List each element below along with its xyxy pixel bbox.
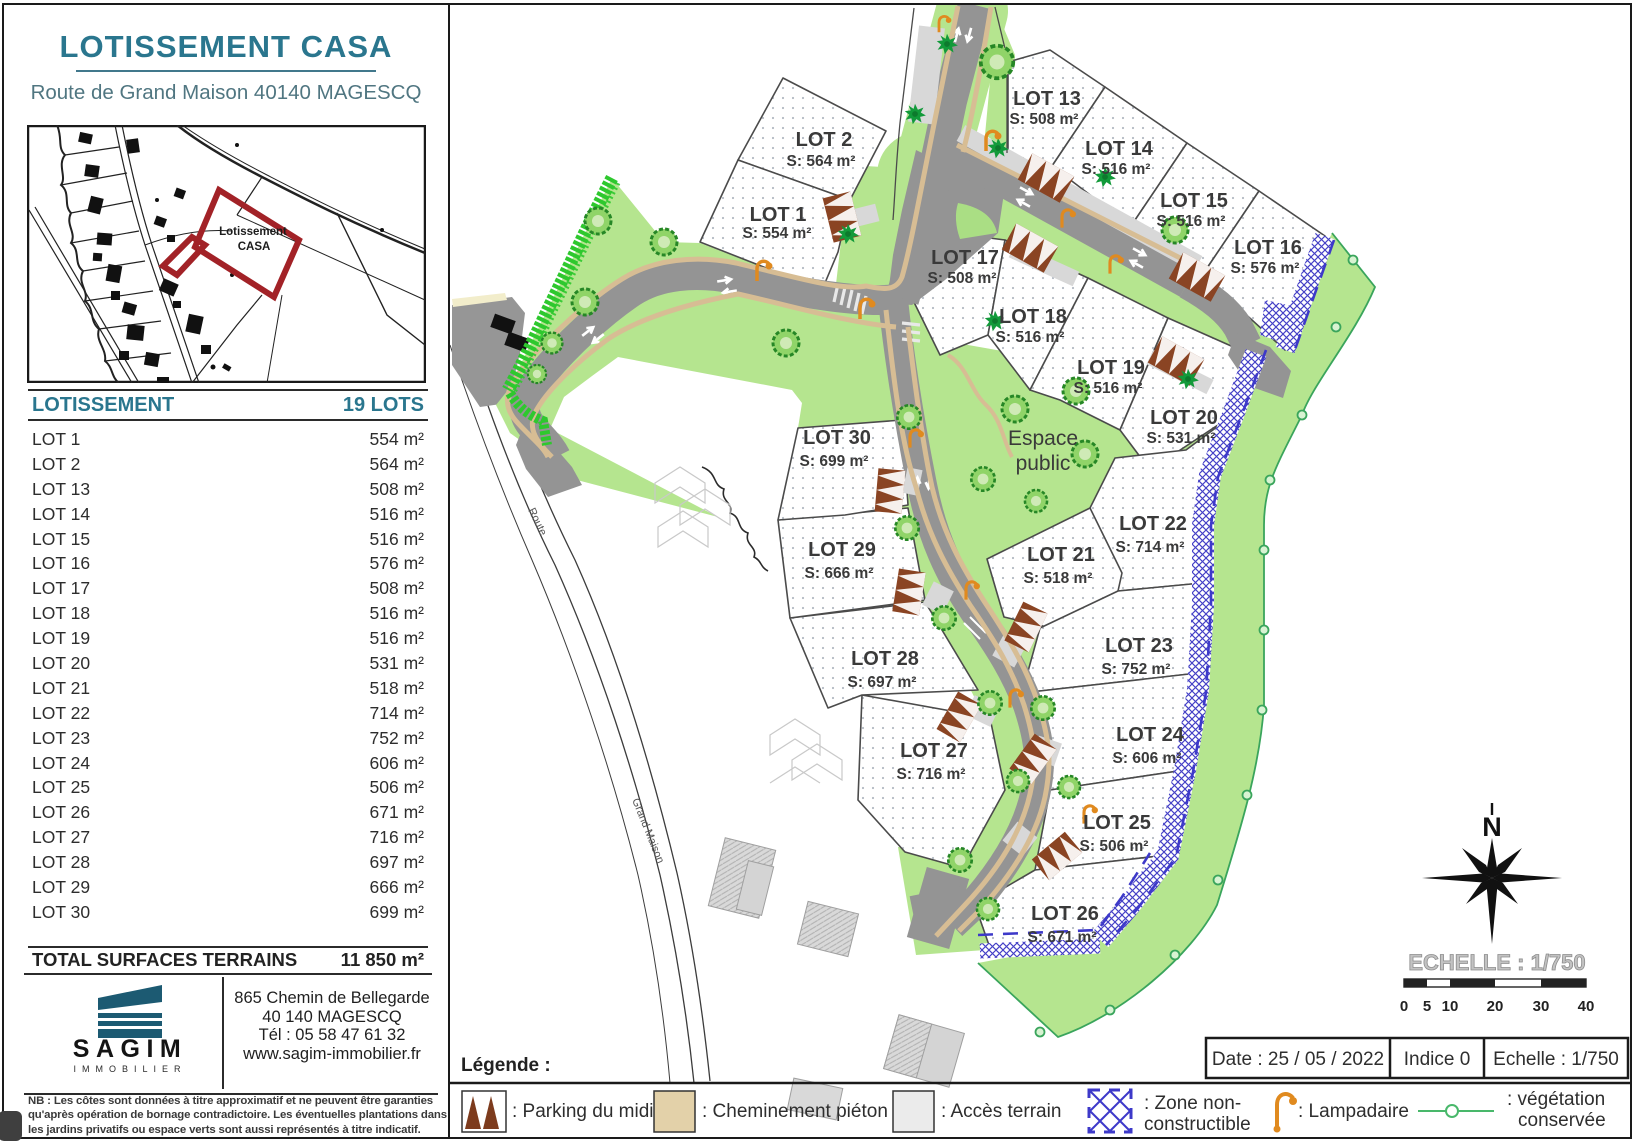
svg-text:LOT 19: LOT 19 [1077,357,1145,379]
svg-text:LOT 28: LOT 28 [851,648,919,670]
svg-text:IMMOBILIER: IMMOBILIER [73,1064,186,1074]
svg-text:Echelle : 1/750: Echelle : 1/750 [1493,1049,1619,1070]
svg-text:LOT 22: LOT 22 [1119,513,1187,535]
svg-text:30: 30 [1533,998,1550,1015]
svg-text:S: 516 m²: S: 516 m² [1082,161,1151,178]
svg-text:S: 516 m²: S: 516 m² [1157,213,1226,230]
svg-text:Lotissement: Lotissement [219,226,287,238]
svg-text:public: public [1016,452,1071,475]
svg-text:LOT 26: LOT 26 [1031,903,1099,925]
svg-text:10: 10 [1442,998,1459,1015]
svg-text:S: 516 m²: S: 516 m² [1074,380,1143,397]
svg-text:5: 5 [1423,998,1431,1015]
svg-text:S: 666 m²: S: 666 m² [805,565,874,582]
svg-text:Espace: Espace [1008,427,1078,450]
svg-text:N: N [1482,812,1502,842]
svg-text:LOT 25: LOT 25 [1083,812,1151,834]
svg-text:S: 564 m²: S: 564 m² [787,153,856,170]
svg-text:20: 20 [1487,998,1504,1015]
svg-text:: Cheminement piéton: : Cheminement piéton [702,1101,888,1122]
svg-text:LOT 13: LOT 13 [1013,88,1081,110]
svg-text:Date : 25 / 05 / 2022: Date : 25 / 05 / 2022 [1212,1049,1384,1070]
svg-text:S: 518 m²: S: 518 m² [1024,570,1093,587]
svg-text:S: 699 m²: S: 699 m² [800,453,869,470]
svg-text:Indice 0: Indice 0 [1404,1049,1471,1070]
svg-text:LOT 27: LOT 27 [900,740,968,762]
svg-text:: végétation: : végétation [1507,1089,1605,1110]
svg-text:S: 508 m²: S: 508 m² [1010,111,1079,128]
svg-text:Légende :: Légende : [461,1055,551,1076]
svg-text:S: 671 m²: S: 671 m² [1028,929,1097,946]
svg-text:0: 0 [1400,998,1408,1015]
svg-text:: Parking du midi: : Parking du midi [512,1101,654,1122]
svg-text:LOT 14: LOT 14 [1085,138,1154,160]
svg-text:LOT 17: LOT 17 [931,247,999,269]
svg-text:LOT 18: LOT 18 [999,306,1067,328]
svg-text:: Lampadaire: : Lampadaire [1298,1101,1409,1122]
svg-text:S: 576 m²: S: 576 m² [1231,260,1300,277]
svg-text:CASA: CASA [238,241,271,253]
svg-text:S: 506 m²: S: 506 m² [1080,838,1149,855]
svg-text:SAGIM: SAGIM [73,1035,187,1063]
svg-text:: Zone non-: : Zone non- [1144,1093,1241,1114]
svg-text:constructible: constructible [1144,1114,1251,1135]
svg-text:LOT 29: LOT 29 [808,539,876,561]
svg-text:Route: Route [525,506,549,538]
svg-text:LOT 23: LOT 23 [1105,635,1173,657]
svg-text:LOT 15: LOT 15 [1160,190,1228,212]
svg-text:S: 697 m²: S: 697 m² [848,674,917,691]
svg-text:LOT 24: LOT 24 [1116,724,1185,746]
svg-text:40: 40 [1578,998,1595,1015]
svg-text:S: 516 m²: S: 516 m² [996,329,1065,346]
svg-text:: Accès terrain: : Accès terrain [941,1101,1061,1122]
svg-text:S: 752 m²: S: 752 m² [1102,661,1171,678]
svg-text:S: 606 m²: S: 606 m² [1113,750,1182,767]
svg-text:S: 531 m²: S: 531 m² [1147,430,1216,447]
svg-text:LOT 30: LOT 30 [803,427,871,449]
svg-text:S: 714 m²: S: 714 m² [1116,539,1185,556]
svg-text:LOT 1: LOT 1 [750,204,807,226]
svg-text:S: 508 m²: S: 508 m² [928,270,997,287]
svg-text:LOT 16: LOT 16 [1234,237,1302,259]
svg-text:conservée: conservée [1518,1110,1606,1131]
svg-text:LOT 2: LOT 2 [796,129,853,151]
svg-text:S: 716 m²: S: 716 m² [897,766,966,783]
svg-text:LOT 20: LOT 20 [1150,407,1218,429]
svg-text:S: 554 m²: S: 554 m² [743,225,812,242]
svg-text:LOT 21: LOT 21 [1027,544,1095,566]
svg-text:ECHELLE : 1/750: ECHELLE : 1/750 [1408,950,1585,975]
